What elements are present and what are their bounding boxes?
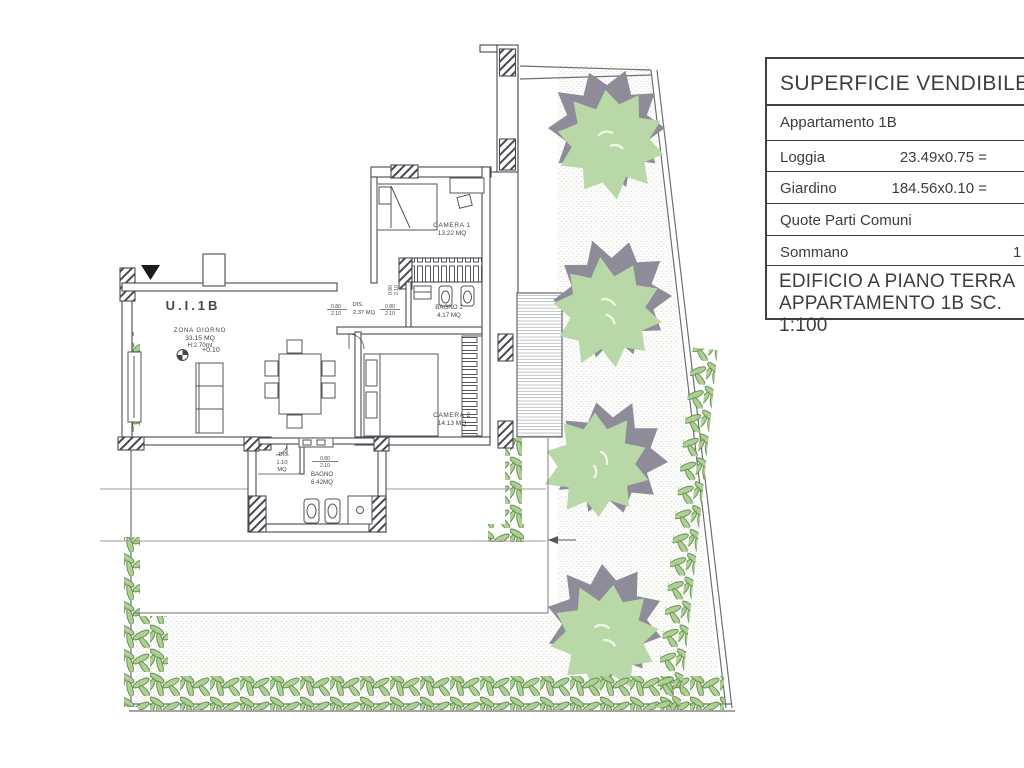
drawing-title: EDIFICIO A PIANO TERRA APPARTAMENTO 1B S… — [767, 266, 1024, 337]
zona-giorno-area: 33.15 MQ — [185, 335, 215, 342]
camera2-name: CAMERA 2 — [433, 412, 471, 419]
zona-giorno-level: +0.10 — [202, 347, 220, 354]
bagno2-name: BAGNO — [311, 471, 334, 478]
building-walls — [118, 45, 518, 532]
hedge-small-horizontal — [488, 524, 524, 542]
bagno2-fixtures — [299, 438, 372, 524]
bagno1-area: 4.17 MQ — [437, 312, 461, 319]
dis2-name: DIS. — [279, 452, 290, 458]
camera1-desk — [450, 178, 484, 208]
table-row-giardino: Giardino 184.56x0.10 = — [767, 172, 1024, 204]
row-value: 1 — [1013, 244, 1021, 261]
dim-080-c: 0.80 — [320, 456, 330, 462]
row-label: Appartamento 1B — [780, 114, 897, 131]
dim-080-b: 0.80 — [385, 304, 395, 310]
dim-210-a: 2.10 — [331, 311, 341, 317]
scanned-floor-plan-page: U.I.1B ZONA GIORNO 33.15 MQ H:2.70mt +0.… — [0, 0, 1024, 768]
living-sofa — [196, 363, 223, 433]
dim-210-v: 2.10 — [394, 285, 400, 295]
row-calculation: 23.49x0.75 = — [862, 149, 987, 166]
level-marker — [177, 350, 188, 361]
table-header: SUPERFICIE VENDIBILE — [767, 59, 1024, 106]
dim-210-c: 2.10 — [320, 463, 330, 469]
row-label: Sommano — [780, 244, 848, 261]
row-calculation: 184.56x0.10 = — [862, 180, 987, 197]
table-row-appartamento: Appartamento 1B — [767, 106, 1024, 141]
bagno1-name: BAGNO 1 — [435, 304, 463, 311]
dis1-area: 2.37 MQ — [353, 310, 376, 316]
camera1-area: 13.22 MQ — [438, 230, 467, 237]
row-label: Giardino — [780, 180, 837, 197]
dis2-area-2: MQ — [277, 467, 287, 473]
bagno2-area: 6.42MQ — [311, 479, 333, 486]
table-row-sommano: Sommano 1 — [767, 236, 1024, 266]
drawing-title-line1: EDIFICIO A PIANO TERRA — [779, 271, 1024, 293]
zona-giorno-name: ZONA GIORNO — [174, 327, 226, 334]
row-label: Loggia — [780, 149, 825, 166]
hedge-bottom — [138, 676, 724, 710]
camera1-bed — [377, 184, 437, 230]
camera2-bed — [364, 354, 438, 436]
table-row-quote-parti-comuni: Quote Parti Comuni — [767, 204, 1024, 236]
entrance-triangle-marker — [141, 265, 160, 280]
row-label: Quote Parti Comuni — [780, 212, 912, 229]
camera1-name: CAMERA 1 — [433, 222, 471, 229]
dim-080-a: 0.80 — [331, 304, 341, 310]
superficie-vendibile-table: SUPERFICIE VENDIBILE Appartamento 1B Log… — [765, 57, 1024, 320]
hedge-left-lower — [124, 537, 140, 707]
dim-210-b: 2.10 — [385, 311, 395, 317]
living-cabinet — [128, 352, 141, 422]
hedge-corner-bush — [140, 616, 168, 682]
bagno1-fixtures — [414, 286, 474, 306]
dining-table-set — [265, 340, 335, 428]
camera2-area: 14.13 MQ — [438, 420, 467, 427]
deck-strip — [517, 293, 562, 437]
hedge-small-vertical — [505, 438, 522, 538]
drawing-title-line2: APPARTAMENTO 1B SC. 1:100 — [779, 293, 1024, 337]
dis1-name: DIS. — [353, 302, 364, 308]
table-row-loggia: Loggia 23.49x0.75 = — [767, 141, 1024, 172]
dis2-area-1: 1.10 — [276, 460, 287, 466]
unit-label: U.I.1B — [166, 298, 221, 313]
